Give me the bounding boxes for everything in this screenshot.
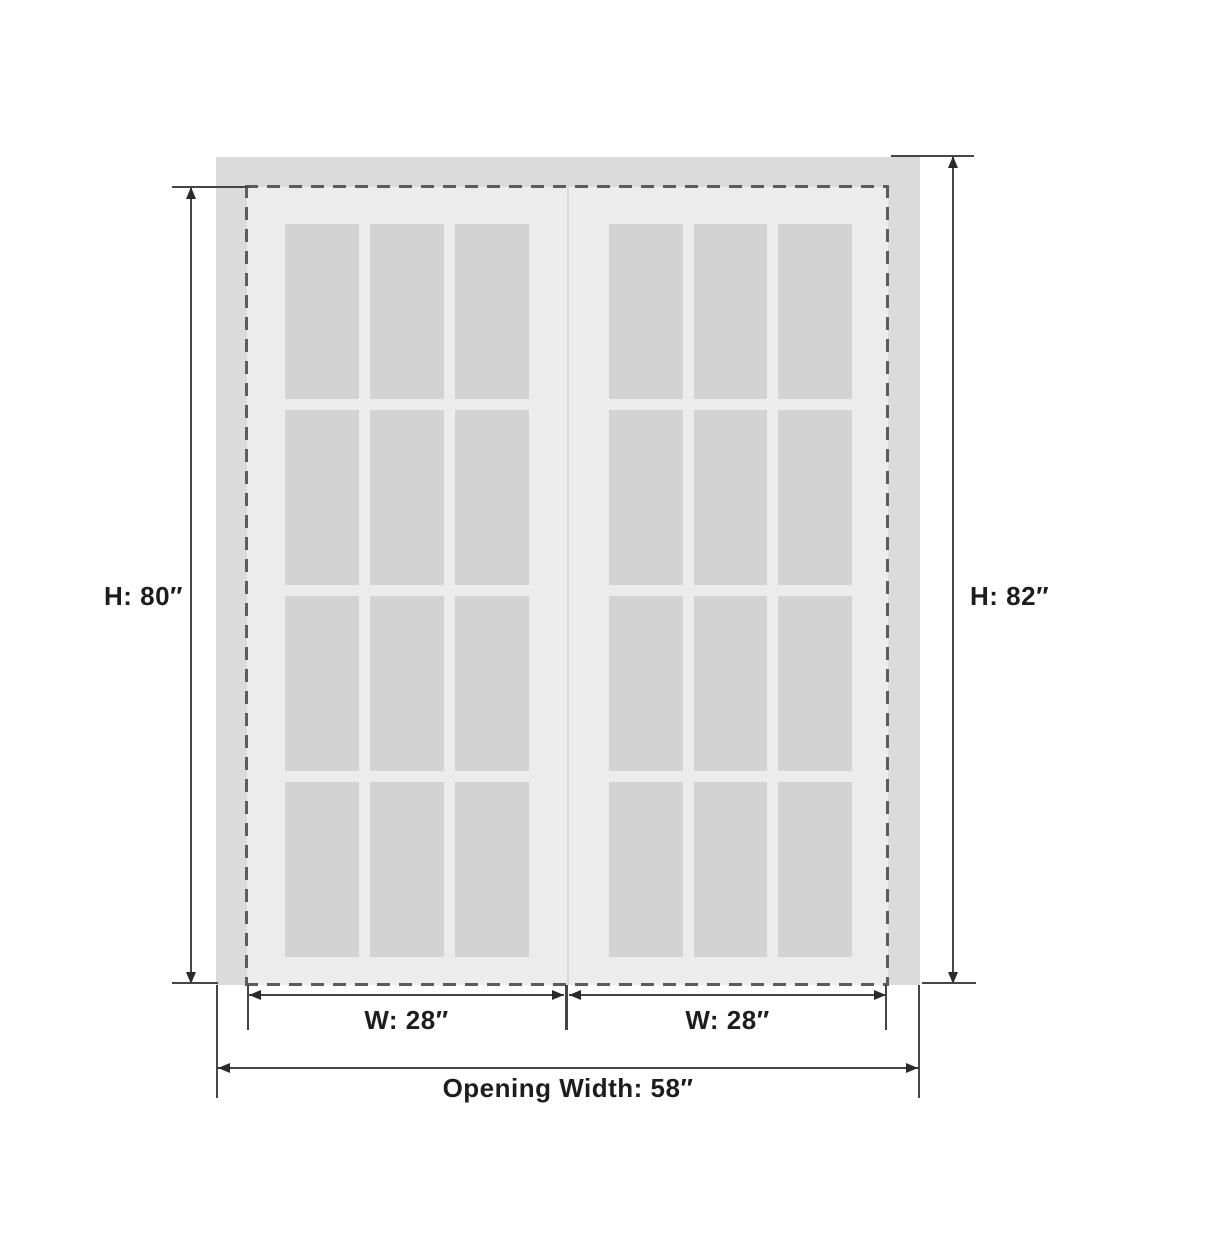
door-height-label: H: 80″: [50, 582, 183, 611]
door-left-width-label: W: 28″: [249, 1006, 564, 1035]
door-height-dimension-line: [190, 188, 192, 984]
door-height-bottom-tick: [172, 982, 218, 984]
glass-pane: [455, 782, 529, 957]
glass-pane: [370, 782, 444, 957]
glass-pane: [694, 224, 768, 399]
glass-pane: [778, 410, 852, 585]
arrow-up-icon: [186, 187, 196, 199]
dashed-outline-top: [245, 185, 889, 188]
dashed-outline-left: [245, 185, 248, 986]
glass-pane: [694, 782, 768, 957]
glass-pane: [370, 410, 444, 585]
glass-pane: [694, 596, 768, 771]
glass-pane: [609, 782, 683, 957]
glass-pane: [455, 410, 529, 585]
arrow-left-icon: [218, 1063, 230, 1073]
door-slab-left: [247, 187, 567, 985]
glass-pane: [609, 410, 683, 585]
glass-pane: [694, 410, 768, 585]
dashed-outline-right: [886, 185, 889, 986]
door-height-top-tick: [172, 186, 250, 188]
arrow-left-icon: [249, 990, 261, 1000]
opening-height-top-tick: [891, 155, 974, 157]
glass-pane: [609, 596, 683, 771]
arrow-right-icon: [552, 990, 564, 1000]
arrow-right-icon: [906, 1063, 918, 1073]
glass-pane: [609, 224, 683, 399]
opening-width-label: Opening Width: 58″: [217, 1074, 919, 1103]
glass-pane: [370, 596, 444, 771]
glass-pane: [285, 782, 359, 957]
opening-height-bottom-tick: [922, 982, 976, 984]
door-width-center-tick: [565, 985, 568, 1030]
glass-pane: [285, 224, 359, 399]
arrow-left-icon: [569, 990, 581, 1000]
door-slab-right: [567, 187, 888, 985]
glass-pane: [778, 224, 852, 399]
opening-height-label: H: 82″: [970, 582, 1190, 611]
opening-height-dimension-line: [952, 157, 954, 984]
door-right-width-dimension-line: [569, 994, 886, 996]
glass-pane: [370, 224, 444, 399]
glass-pane: [778, 782, 852, 957]
door-right-width-label: W: 28″: [569, 1006, 886, 1035]
opening-width-dimension-line: [218, 1067, 918, 1069]
glass-pane: [778, 596, 852, 771]
glass-pane: [455, 596, 529, 771]
door-left-width-dimension-line: [249, 994, 564, 996]
arrow-up-icon: [948, 156, 958, 168]
glass-pane: [285, 596, 359, 771]
glass-pane: [285, 410, 359, 585]
door-dimension-diagram: H: 80″ H: 82″ W: 28″ W: 28″ Opening Widt…: [0, 0, 1214, 1251]
glass-pane: [455, 224, 529, 399]
